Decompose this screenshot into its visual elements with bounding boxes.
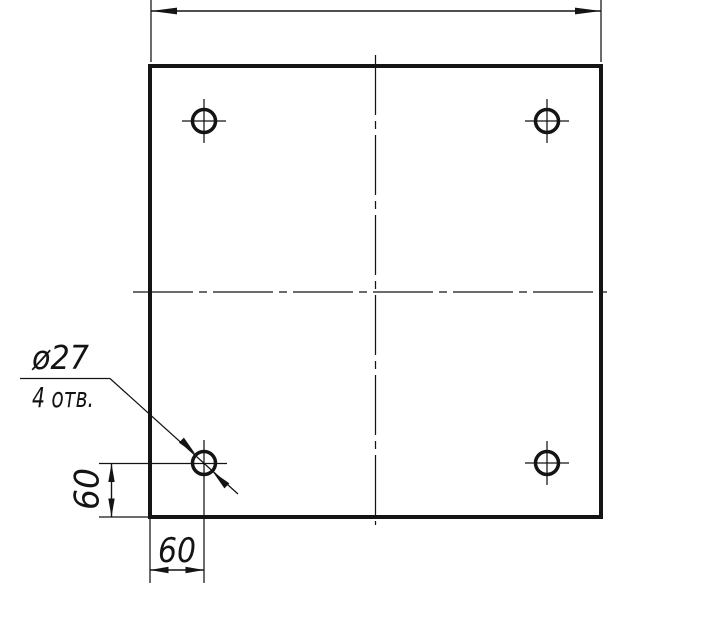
drawing-canvas: ø27 4 отв. 60 60 [0,0,713,631]
dimension-arrow-up [108,464,114,483]
top-dimension [151,0,601,62]
vertical-offset-dimension: 60 [68,464,149,518]
leader-arrow-lower [213,472,230,489]
dimension-arrow-right [575,8,601,15]
hole-callout: ø27 4 отв. [20,338,238,494]
callout-diameter-label: ø27 [31,338,89,377]
horizontal-offset-label: 60 [158,531,196,571]
vertical-offset-label: 60 [68,468,108,510]
callout-holes-count-label: 4 отв. [32,381,94,414]
hole-bottom-right [525,441,569,485]
horizontal-offset-dimension: 60 [150,519,204,583]
hole-top-left [182,99,226,143]
hole-top-right [525,99,569,143]
leader-arrow-upper [179,438,196,455]
plate-drawing-svg: ø27 4 отв. 60 60 [0,0,713,631]
dimension-arrow-left [151,8,177,15]
dimension-arrow-down [108,499,114,518]
